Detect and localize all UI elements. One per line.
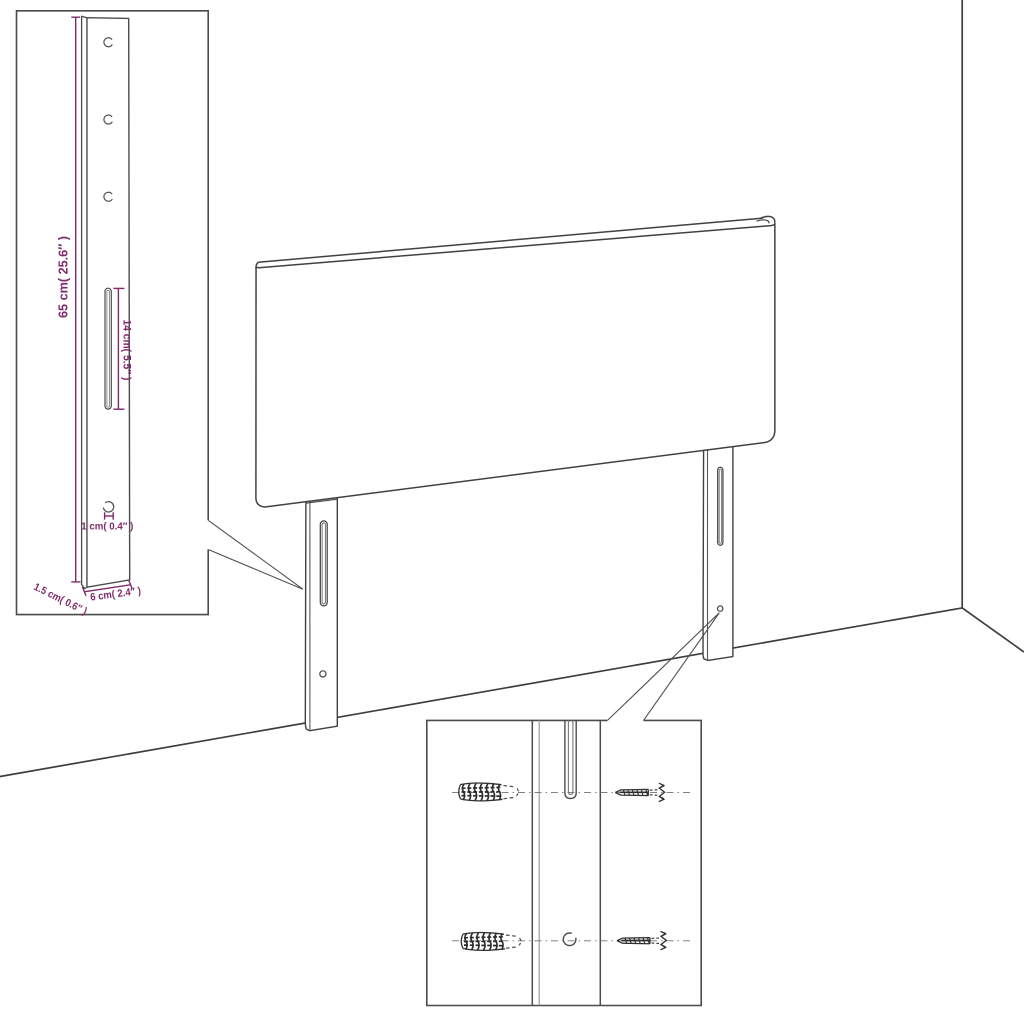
- svg-text:14 cm( 5.5″ ): 14 cm( 5.5″ ): [121, 320, 133, 381]
- svg-text:1 cm( 0.4″ ): 1 cm( 0.4″ ): [81, 521, 133, 533]
- svg-text:65 cm( 25.6″ ): 65 cm( 25.6″ ): [57, 236, 71, 318]
